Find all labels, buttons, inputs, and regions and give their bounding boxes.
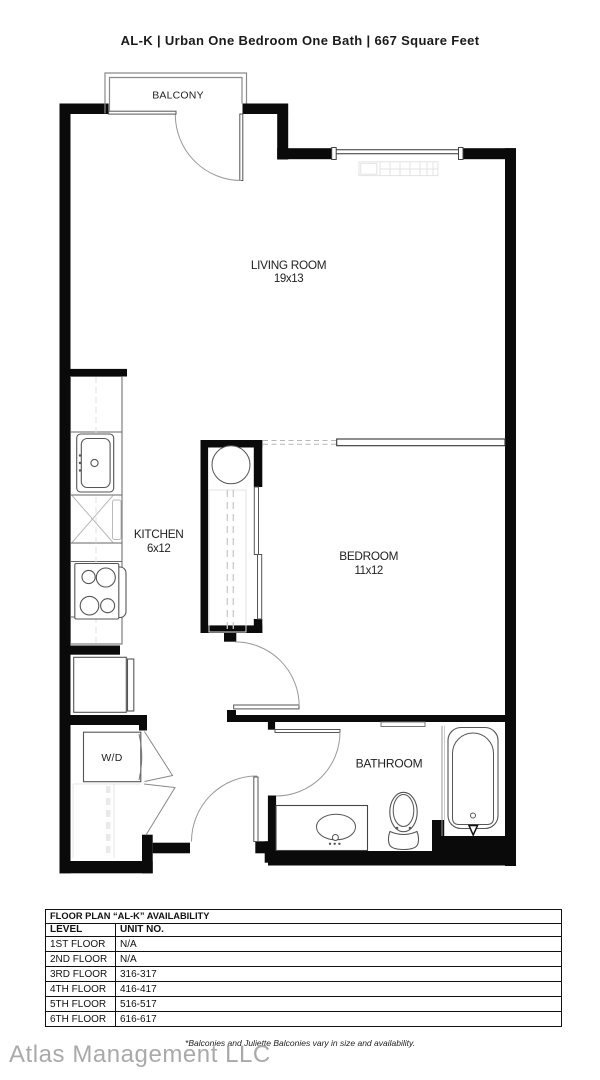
svg-text:LIVING ROOM: LIVING ROOM [251, 258, 326, 272]
svg-text:KITCHEN: KITCHEN [134, 527, 184, 541]
svg-text:BEDROOM: BEDROOM [339, 549, 398, 563]
svg-text:W/D: W/D [101, 752, 122, 764]
svg-text:11x12: 11x12 [354, 565, 382, 577]
svg-text:19x13: 19x13 [274, 273, 303, 285]
svg-text:BALCONY: BALCONY [152, 90, 204, 102]
svg-text:BATHROOM: BATHROOM [356, 756, 423, 770]
svg-text:6x12: 6x12 [147, 543, 170, 555]
